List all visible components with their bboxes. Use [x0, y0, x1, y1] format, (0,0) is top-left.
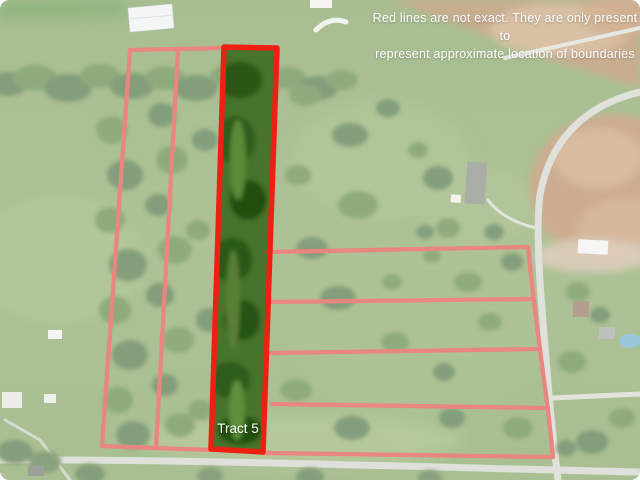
boundary-disclaimer-line1: Red lines are not exact. They are only p… — [372, 9, 638, 45]
tract5-label: Tract 5 — [200, 421, 276, 436]
aerial-property-photo: Red lines are not exact. They are only p… — [0, 0, 640, 480]
boundary-disclaimer-line2: represent approximate location of bounda… — [372, 45, 638, 63]
fade-overlay — [0, 0, 640, 480]
boundary-disclaimer: Red lines are not exact. They are only p… — [372, 9, 638, 63]
aerial-photo-rendering — [0, 0, 640, 480]
